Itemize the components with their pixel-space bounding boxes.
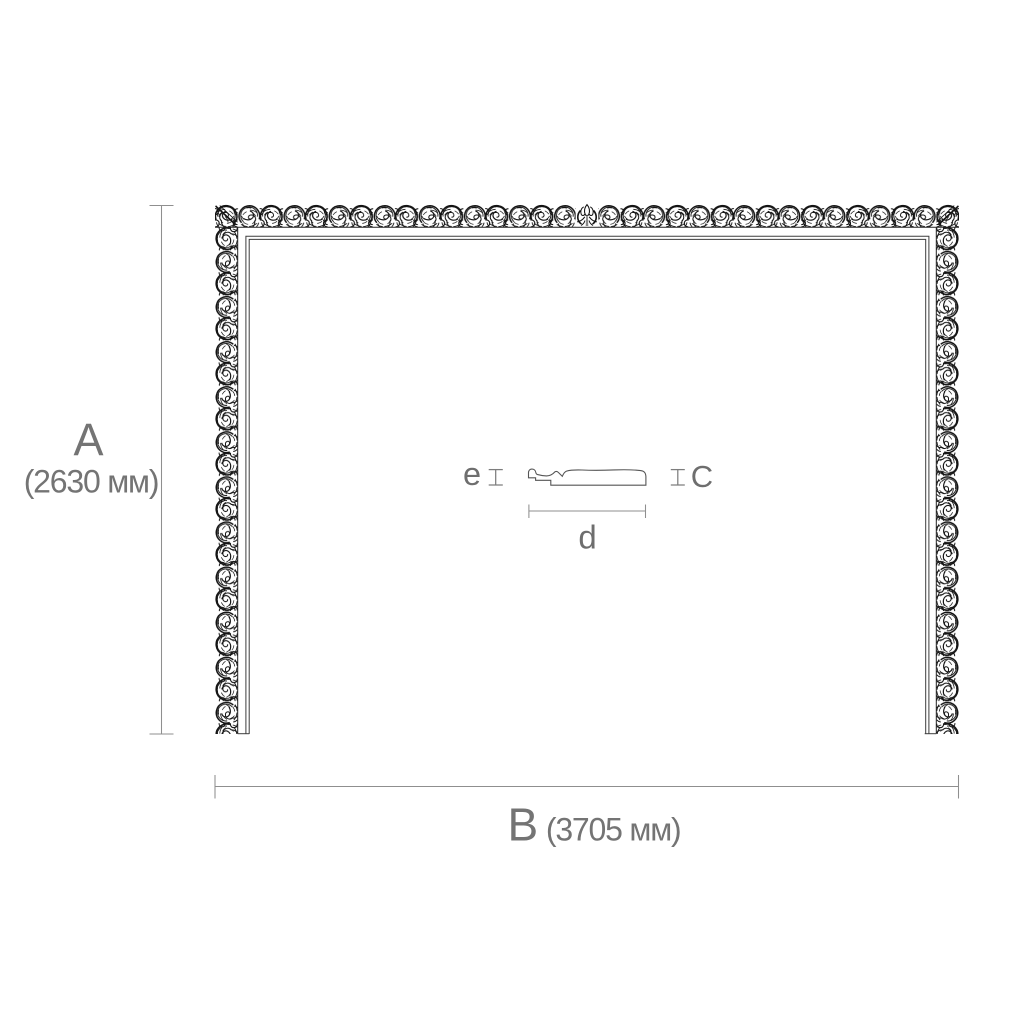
svg-text:B (3705 мм): B (3705 мм) xyxy=(508,799,681,851)
svg-text:C: C xyxy=(691,459,713,494)
svg-text:(2630 мм): (2630 мм) xyxy=(24,464,159,500)
svg-text:d: d xyxy=(578,519,596,556)
svg-text:e: e xyxy=(463,456,481,492)
svg-text:A: A xyxy=(73,414,103,465)
